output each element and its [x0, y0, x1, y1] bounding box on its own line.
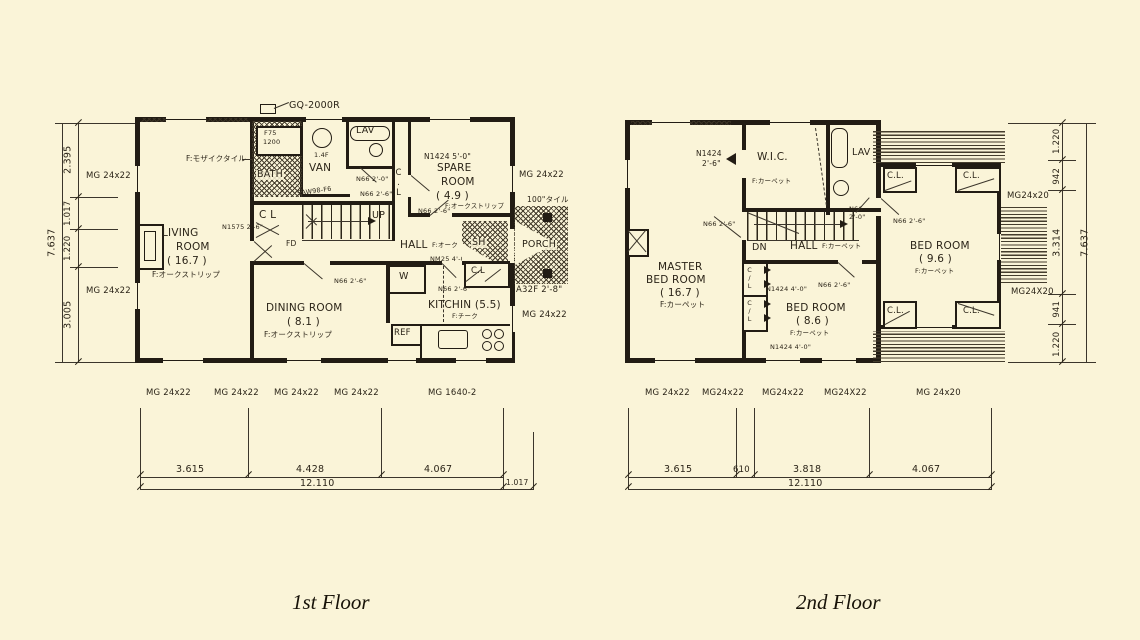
roof-hatch — [873, 331, 1005, 362]
stairs-edge-line — [302, 240, 392, 241]
wall — [862, 260, 881, 264]
fireplace-inner — [144, 231, 156, 261]
door-size-label: N66 2'-6" — [334, 278, 366, 285]
wall — [452, 213, 512, 217]
wall — [742, 124, 746, 150]
dim-label: 1.220 — [64, 230, 73, 266]
wall — [742, 240, 746, 262]
tile-label: 100"タイル — [527, 196, 569, 204]
closet-label: C L — [259, 210, 276, 221]
dim-label: 4.067 — [424, 465, 452, 475]
room-label: SPARE — [437, 163, 471, 174]
lav-label: LAV — [852, 148, 871, 158]
washbasin-icon — [312, 128, 332, 148]
room-area-label: ( 8.1 ) — [287, 317, 320, 328]
window-size-label: N1424 4'-0" — [770, 344, 811, 351]
leader-line — [242, 159, 252, 160]
dim-guide — [1008, 362, 1096, 363]
floor-finish-label: F:オークストリップ — [445, 203, 504, 210]
room-area-label: ( 16.7 ) — [660, 288, 700, 299]
room-label: HALL — [790, 241, 818, 252]
burner-icon — [494, 329, 504, 339]
window-spec-label: MG24X20 — [1011, 288, 1054, 297]
floor-plan-sheet: F75 1200 BATH VAN 1.4F 5AW98-F6 LAV N66 … — [0, 0, 1140, 640]
floor-finish-label: F:カーペット — [752, 178, 791, 185]
dim-guide — [55, 362, 135, 363]
dim-label: 3.615 — [176, 465, 204, 475]
room-label: LIVING — [162, 228, 198, 239]
door-swing-line — [881, 198, 900, 215]
closet-label: C.L. — [963, 172, 980, 181]
floor-finish-label: F:カーペット — [660, 301, 705, 309]
wall — [346, 166, 395, 169]
window — [163, 358, 203, 363]
burner-icon — [482, 329, 492, 339]
dim-guide — [248, 408, 249, 478]
window — [306, 117, 342, 122]
door-size-label: N66 2'-6" — [438, 286, 470, 293]
room-label: BED ROOM — [910, 241, 970, 252]
wall — [346, 117, 349, 169]
dim-label: 3.818 — [793, 465, 821, 475]
window-spec-label: MG24X22 — [824, 389, 867, 398]
dim-line — [78, 123, 79, 363]
dim-total-label: 7.637 — [47, 225, 57, 261]
bath-label: BATH — [256, 170, 284, 180]
window-spec-label: MG 24x22 — [522, 311, 567, 320]
window-spec-label: MG 24x22 — [334, 389, 379, 398]
door-leaf-icon — [726, 153, 736, 165]
window-spec-label: MG 24x20 — [916, 389, 961, 398]
closet-label: C/L — [746, 299, 753, 323]
fd-label: FD — [286, 240, 297, 248]
window — [652, 120, 690, 125]
window — [166, 117, 206, 122]
window — [916, 325, 952, 329]
window-size-label: N1424 5'-0" — [424, 153, 471, 161]
window-spec-label: MG 24x22 — [86, 287, 131, 296]
door-swing-line — [254, 241, 273, 258]
dim-label: 4.428 — [296, 465, 324, 475]
dim-label: 3.314 — [1052, 226, 1062, 260]
dn-label: DN — [752, 243, 767, 253]
roof-hatch — [873, 131, 1005, 163]
floor1-caption: 1st Floor — [292, 590, 370, 615]
wall — [250, 262, 254, 361]
window — [822, 358, 856, 363]
room-label: KITCHIN (5.5) — [428, 300, 501, 311]
porch-post — [543, 213, 552, 222]
dim-guide — [503, 408, 504, 490]
door-size-label: N1424 — [696, 150, 722, 158]
wall — [250, 261, 304, 265]
floor-finish-label: F:カーペット — [915, 268, 954, 275]
window — [510, 166, 515, 192]
room-label: BED ROOM — [786, 303, 846, 314]
tub-size-label: 1200 — [263, 139, 280, 146]
door-size-label: N66 2'-6" — [893, 218, 925, 225]
window-spec-label: MG 24x22 — [519, 171, 564, 180]
room-label: ROOM — [176, 242, 210, 253]
door-swing-line — [254, 245, 273, 262]
burner-icon — [482, 341, 492, 351]
door-size-label: N66 2'-6" — [360, 191, 392, 198]
wall — [826, 124, 830, 215]
wall — [408, 117, 411, 175]
dim-label: 941 — [1053, 292, 1062, 326]
floor-finish-label: F:カーペット — [822, 243, 861, 250]
lav-tub-icon — [831, 128, 848, 168]
dim-guide — [754, 408, 755, 478]
stairs-arrow-line — [308, 221, 370, 222]
dim-total-label: 12.110 — [300, 479, 334, 489]
door-swing-line — [411, 175, 430, 191]
dim-guide — [869, 408, 870, 478]
van-label: VAN — [309, 163, 331, 174]
window-spec-label: MG 24x22 — [645, 389, 690, 398]
window — [766, 358, 800, 363]
dim-label: 3.615 — [664, 465, 692, 475]
closet-label: W — [399, 272, 409, 282]
room-label: HALL — [400, 240, 428, 251]
floor-finish-label: F:オークストリップ — [264, 331, 332, 339]
stairs-arrow-line — [754, 224, 842, 225]
dim-label: 3.005 — [63, 297, 73, 333]
closet-door-icon — [764, 300, 771, 308]
entry-label: SH — [471, 238, 487, 248]
van-note-label: 1.4F — [314, 152, 329, 159]
door-size-label: N1575 2'-6" — [222, 224, 263, 231]
window — [287, 358, 321, 363]
room-label: W.I.C. — [757, 152, 788, 163]
closet-label: C.L. — [887, 172, 904, 181]
window-spec-label: MG 24x22 — [146, 389, 191, 398]
refrigerator-label: REF — [394, 329, 411, 338]
wall — [250, 201, 254, 241]
floor-finish-label: F:オークストリップ — [152, 271, 220, 279]
dim-label: 1.017 — [64, 195, 73, 231]
dim-guide — [55, 123, 135, 124]
window-spec-label: MG24x22 — [762, 389, 804, 398]
window — [135, 283, 140, 309]
window — [430, 117, 470, 122]
window — [625, 160, 630, 188]
window — [916, 163, 952, 167]
floor-finish-label: F:カーペット — [790, 330, 829, 337]
leader-line — [274, 102, 289, 109]
window-spec-label: MG 24x22 — [214, 389, 259, 398]
closet-door-icon — [764, 314, 771, 322]
roof-hatch — [1001, 207, 1047, 283]
dim-label: 2.395 — [63, 142, 73, 178]
window-spec-label: MG24x20 — [1007, 192, 1049, 201]
window-spec-label: MG 24x22 — [274, 389, 319, 398]
water-heater-label: GQ-2000R — [289, 101, 340, 111]
tub-model-label: F75 — [264, 130, 277, 137]
room-label: MASTER — [658, 262, 702, 273]
closet-label: C/L — [746, 266, 753, 290]
wall — [742, 328, 746, 363]
dim-line — [628, 489, 991, 490]
floor2-caption: 2nd Floor — [796, 590, 881, 615]
dim-label: 1.017 — [506, 479, 528, 487]
room-area-label: ( 4.9 ) — [436, 191, 469, 202]
room-label: ROOM — [441, 177, 475, 188]
toilet-icon — [369, 143, 383, 157]
dim-guide — [991, 408, 992, 490]
window — [655, 358, 695, 363]
floor-finish-label: F:オーク — [432, 242, 458, 249]
dim-label: 1.220 — [1053, 124, 1062, 158]
wall — [392, 117, 395, 167]
dim-label: 4.067 — [912, 465, 940, 475]
dim-label: 1.220 — [1053, 327, 1062, 361]
porch-label: PORCH — [521, 240, 557, 250]
floor-finish-label: F:モザイクタイル — [186, 155, 246, 163]
door-size-label: N66 2'-6" — [818, 282, 850, 289]
closet-label: C.L — [394, 168, 403, 198]
room-label: DINING ROOM — [266, 303, 343, 314]
floor-finish-label: F:チーク — [452, 313, 478, 320]
window-size-label: N1424 4'-0" — [766, 286, 807, 293]
door-size-label: 2'-6" — [702, 160, 721, 168]
room-label: BED ROOM — [646, 275, 706, 286]
window — [997, 234, 1001, 260]
door-swing-line — [838, 262, 855, 278]
window-spec-label: MG24x22 — [702, 389, 744, 398]
stairs-arrow-head — [840, 220, 848, 228]
up-label: UP — [372, 211, 385, 221]
room-area-label: ( 9.6 ) — [919, 254, 952, 265]
window — [510, 306, 515, 332]
door-size-label: A32F 2'-8" — [516, 286, 562, 295]
dim-total-label: 12.110 — [788, 479, 822, 489]
closet-door-icon — [764, 266, 771, 274]
sink-icon — [438, 330, 468, 349]
window-spec-label: MG 1640-2 — [428, 389, 477, 398]
room-area-label: ( 16.7 ) — [167, 256, 207, 267]
wall — [742, 178, 746, 212]
toilet-icon — [833, 180, 849, 196]
window — [388, 358, 416, 363]
dim-line — [140, 489, 533, 490]
lav-label: LAV — [356, 126, 375, 136]
window — [770, 120, 810, 125]
porch-post — [543, 269, 552, 278]
dim-label: 942 — [1053, 159, 1062, 193]
door-swing-line — [304, 263, 323, 279]
dim-total-label: 7.637 — [1080, 226, 1090, 260]
dim-label: 610 — [733, 466, 750, 475]
dim-guide — [533, 432, 534, 490]
window — [456, 358, 486, 363]
window — [135, 166, 140, 192]
window-spec-label: MG 24x22 — [86, 172, 131, 181]
dim-guide — [381, 408, 382, 478]
kitchen-divider-dashed-line — [443, 266, 444, 322]
room-area-label: ( 8.6 ) — [796, 316, 829, 327]
burner-icon — [494, 341, 504, 351]
